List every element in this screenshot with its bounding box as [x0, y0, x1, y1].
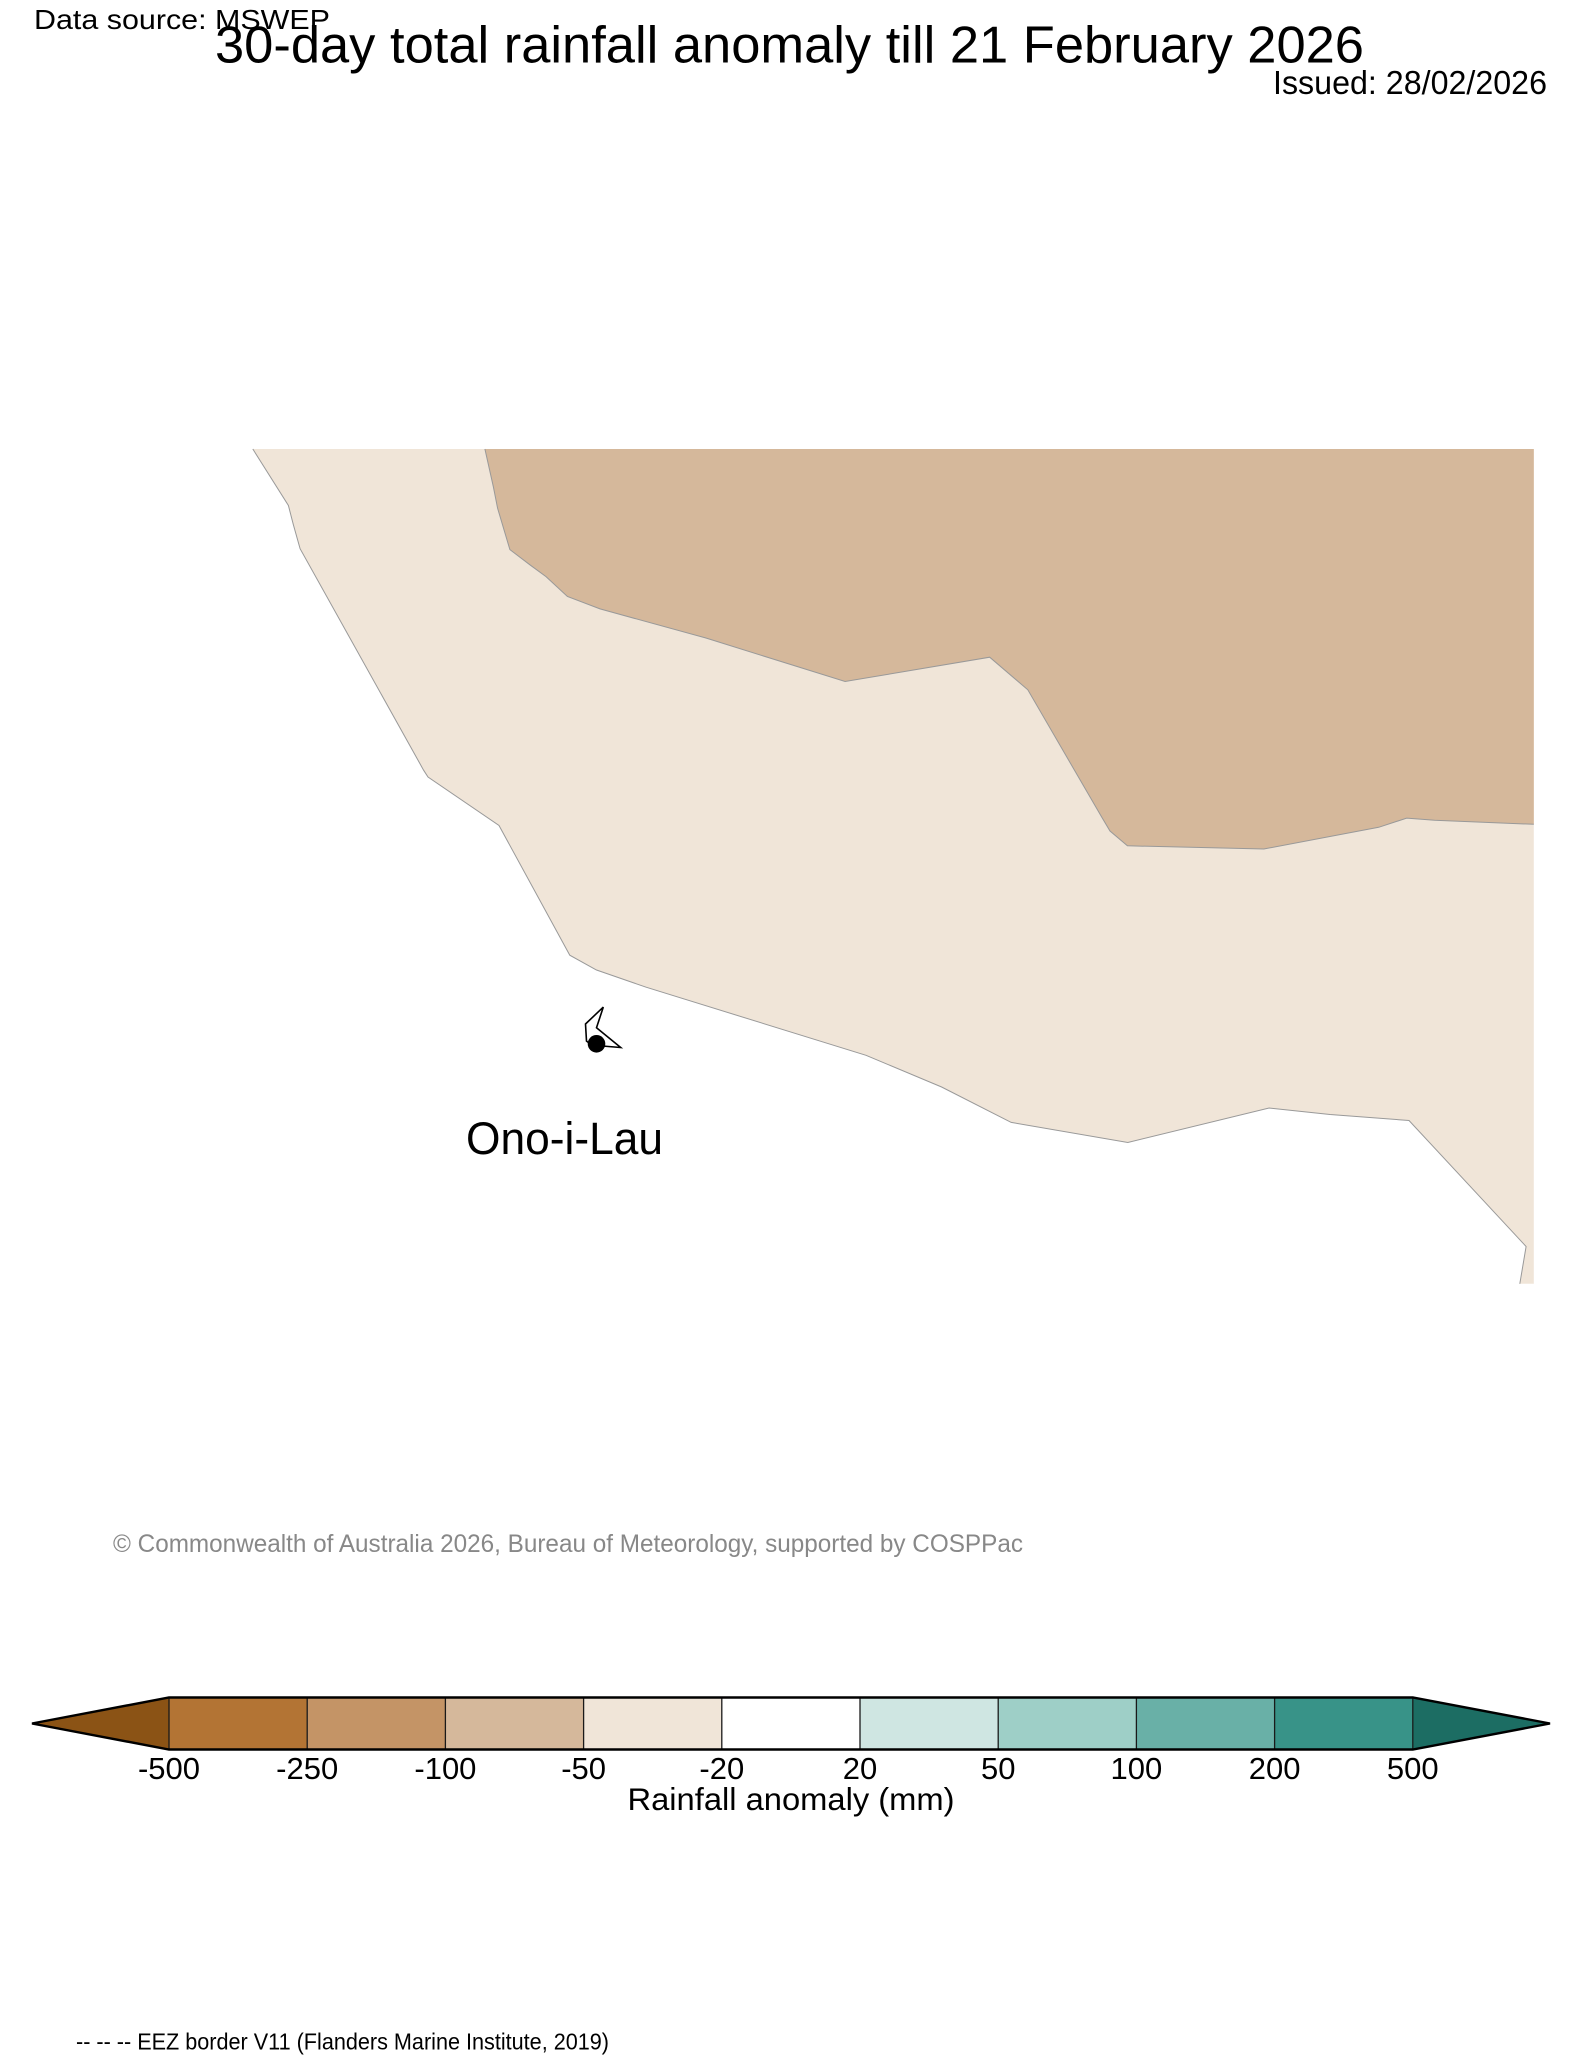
svg-text:-50: -50: [561, 1751, 606, 1786]
svg-text:-250: -250: [276, 1751, 338, 1786]
svg-text:200: 200: [1249, 1751, 1301, 1786]
svg-text:500: 500: [1387, 1751, 1439, 1786]
svg-text:-500: -500: [138, 1751, 200, 1786]
svg-text:30-day total rainfall anomaly: 30-day total rainfall anomaly till 21 Fe…: [215, 16, 1364, 74]
svg-text:Issued: 28/02/2026: Issued: 28/02/2026: [1273, 65, 1547, 102]
svg-text:Ono-i-Lau: Ono-i-Lau: [466, 1113, 663, 1164]
svg-text:© Commonwealth of Australia 20: © Commonwealth of Australia 2026, Bureau…: [113, 1530, 1023, 1558]
svg-text:Rainfall anomaly (mm): Rainfall anomaly (mm): [628, 1782, 955, 1817]
svg-text:100: 100: [1111, 1751, 1163, 1786]
svg-text:20: 20: [843, 1751, 877, 1786]
svg-text:-- -- -- EEZ border V11 (Fland: -- -- -- EEZ border V11 (Flanders Marine…: [76, 2028, 609, 2054]
svg-text:50: 50: [981, 1751, 1015, 1786]
svg-text:-100: -100: [414, 1751, 476, 1786]
svg-text:-20: -20: [699, 1751, 744, 1786]
